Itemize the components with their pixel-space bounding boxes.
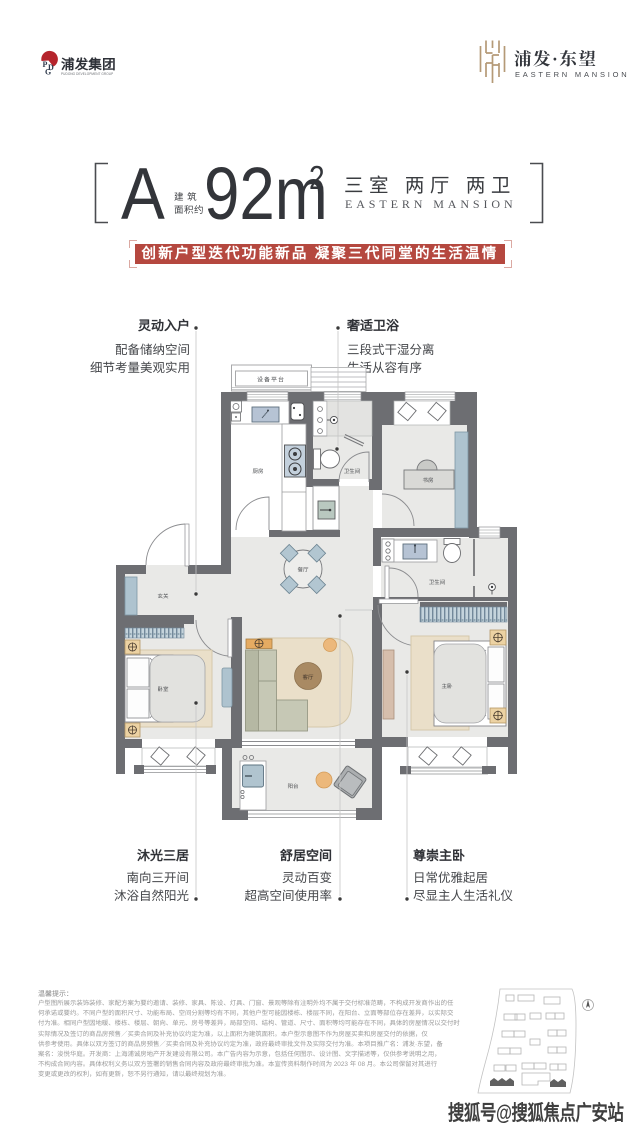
svg-text:卫生间: 卫生间 bbox=[344, 468, 361, 475]
svg-text:餐厅: 餐厅 bbox=[297, 567, 309, 574]
svg-text:厨房: 厨房 bbox=[252, 468, 264, 475]
svg-text:主卧: 主卧 bbox=[441, 683, 453, 690]
svg-text:卫生间: 卫生间 bbox=[429, 579, 446, 586]
svg-text:阳台: 阳台 bbox=[287, 783, 299, 790]
svg-text:书房: 书房 bbox=[422, 477, 434, 484]
svg-text:玄关: 玄关 bbox=[157, 593, 169, 600]
svg-text:设备平台: 设备平台 bbox=[257, 376, 285, 384]
svg-text:客厅: 客厅 bbox=[302, 674, 314, 681]
svg-text:卧室: 卧室 bbox=[157, 686, 169, 693]
